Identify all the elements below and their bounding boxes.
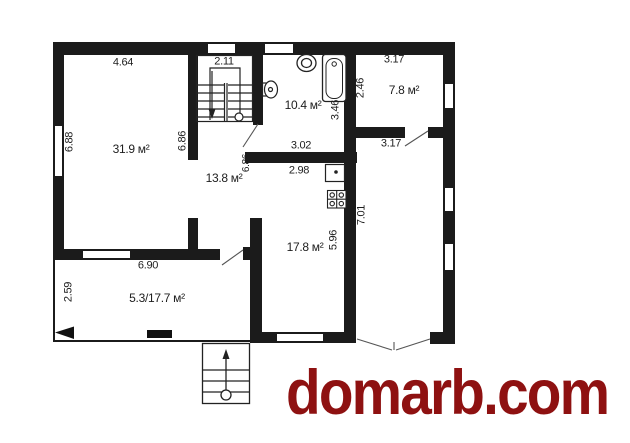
dim-terrace-top: 6.90 bbox=[138, 261, 158, 272]
dim-kitchen-top: 2.98 bbox=[289, 166, 309, 177]
toilet-symbol bbox=[297, 55, 316, 72]
washbasin-symbol bbox=[263, 81, 278, 98]
floor-plan-page: { "watermark": { "text": "domarb.com", "… bbox=[0, 0, 630, 443]
dim-living-top: 4.64 bbox=[113, 58, 133, 69]
dim-stairs-top: 2.11 bbox=[214, 57, 233, 68]
room-label-kitchen: 17.8 м² bbox=[287, 241, 324, 253]
dim-terrace-left: 2.59 bbox=[64, 282, 75, 302]
dim-bathroom-bottom: 3.02 bbox=[291, 141, 311, 152]
dim-corridor-top: 3.17 bbox=[381, 139, 401, 150]
dim-topright-top: 3.17 bbox=[384, 55, 404, 66]
floor-plan-canvas: 4.64 2.11 3.17 6.88 2.46 3.46 6.86 6.86 … bbox=[0, 0, 630, 443]
dim-bathroom-right: 3.46 bbox=[331, 100, 342, 120]
room-label-hall: 13.8 м² bbox=[206, 172, 243, 184]
dim-kitchen-right: 5.96 bbox=[329, 230, 340, 250]
dim-living-right: 6.86 bbox=[178, 131, 189, 151]
porch-post-marks bbox=[55, 327, 172, 340]
watermark-logo: domarb.com bbox=[286, 362, 608, 425]
room-label-topright: 7.8 м² bbox=[389, 84, 419, 96]
stove-symbol bbox=[328, 191, 347, 209]
room-label-bathroom: 10.4 м² bbox=[285, 99, 322, 111]
kitchen-sink-symbol bbox=[326, 165, 345, 182]
dim-hall-right: 6.86 bbox=[242, 154, 252, 172]
room-label-terrace: 5.3/17.7 м² bbox=[129, 292, 185, 304]
bathtub-symbol bbox=[323, 55, 347, 102]
entrance-steps-symbol bbox=[203, 344, 250, 404]
dim-topright-left: 2.46 bbox=[356, 78, 367, 98]
dim-left-wall: 6.88 bbox=[65, 132, 76, 152]
dim-corridor-right: 7.01 bbox=[357, 205, 368, 225]
door-swing-lines bbox=[222, 124, 430, 350]
room-label-living: 31.9 м² bbox=[113, 143, 150, 155]
